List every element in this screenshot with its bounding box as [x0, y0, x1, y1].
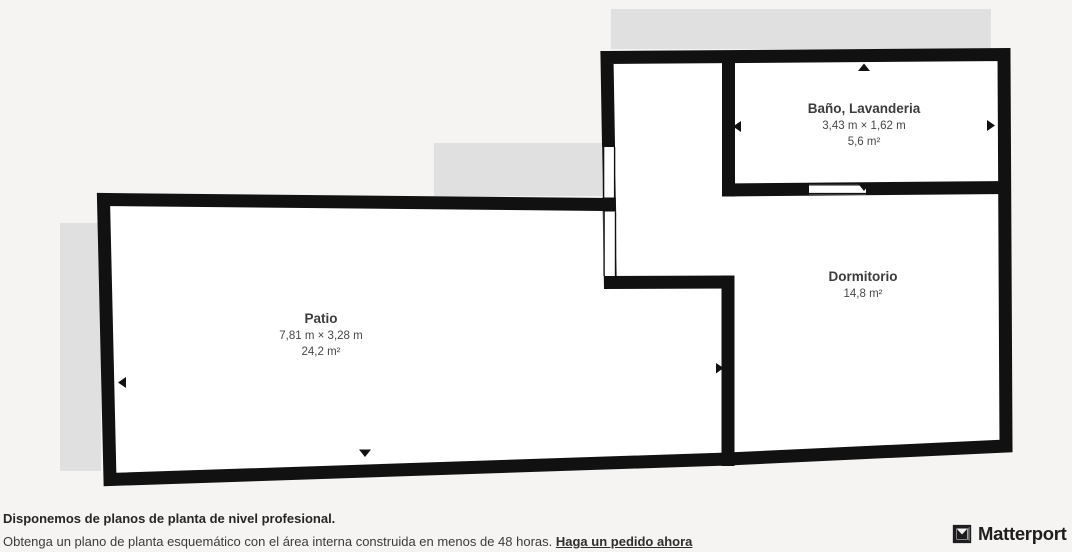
matterport-wordmark: Matterport — [978, 522, 1066, 546]
window-corridor-upper — [603, 147, 616, 198]
promo-headline: Disponemos de planos de planta de nivel … — [3, 511, 823, 526]
window-corridor-lower — [603, 212, 616, 277]
exterior-walls — [104, 55, 1007, 480]
wall-corridor-bottom — [604, 282, 735, 283]
shadow-block-left — [60, 223, 101, 471]
promo-body: Obtenga un plano de planta esquemático c… — [3, 534, 823, 549]
floor-plan-drawing — [0, 0, 1072, 552]
order-now-link[interactable]: Haga un pedido ahora — [556, 534, 693, 549]
shadow-block-middle — [434, 143, 610, 196]
matterport-logo[interactable]: Matterport — [951, 522, 1066, 546]
matterport-m-icon — [951, 523, 973, 545]
window-bathroom-bottom — [809, 184, 866, 194]
floor-plan-canvas: Baño, Lavanderia 3,43 m × 1,62 m 5,6 m² … — [0, 0, 1072, 552]
shadow-block-top — [611, 9, 991, 49]
promo-body-text: Obtenga un plano de planta esquemático c… — [3, 534, 556, 549]
promo-footer: Disponemos de planos de planta de nivel … — [3, 511, 823, 549]
